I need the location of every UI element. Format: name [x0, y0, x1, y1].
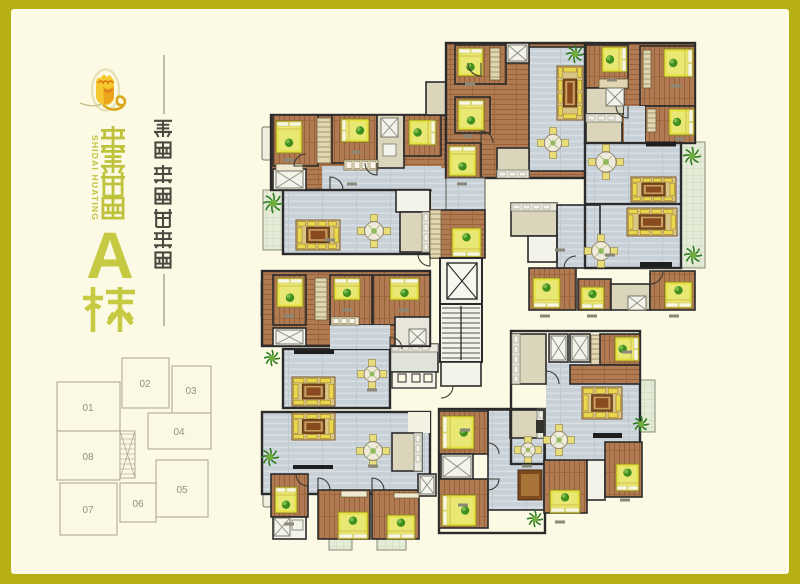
svg-text:A: A	[86, 218, 134, 292]
svg-text:SHIDAI HUATING: SHIDAI HUATING	[90, 135, 100, 221]
svg-text:04: 04	[173, 427, 185, 438]
svg-text:08: 08	[82, 452, 94, 463]
svg-text:01: 01	[82, 403, 94, 414]
svg-text:06: 06	[132, 499, 144, 510]
svg-text:02: 02	[139, 379, 151, 390]
svg-text:07: 07	[82, 505, 94, 516]
svg-text:05: 05	[176, 485, 188, 496]
svg-text:03: 03	[185, 386, 197, 397]
